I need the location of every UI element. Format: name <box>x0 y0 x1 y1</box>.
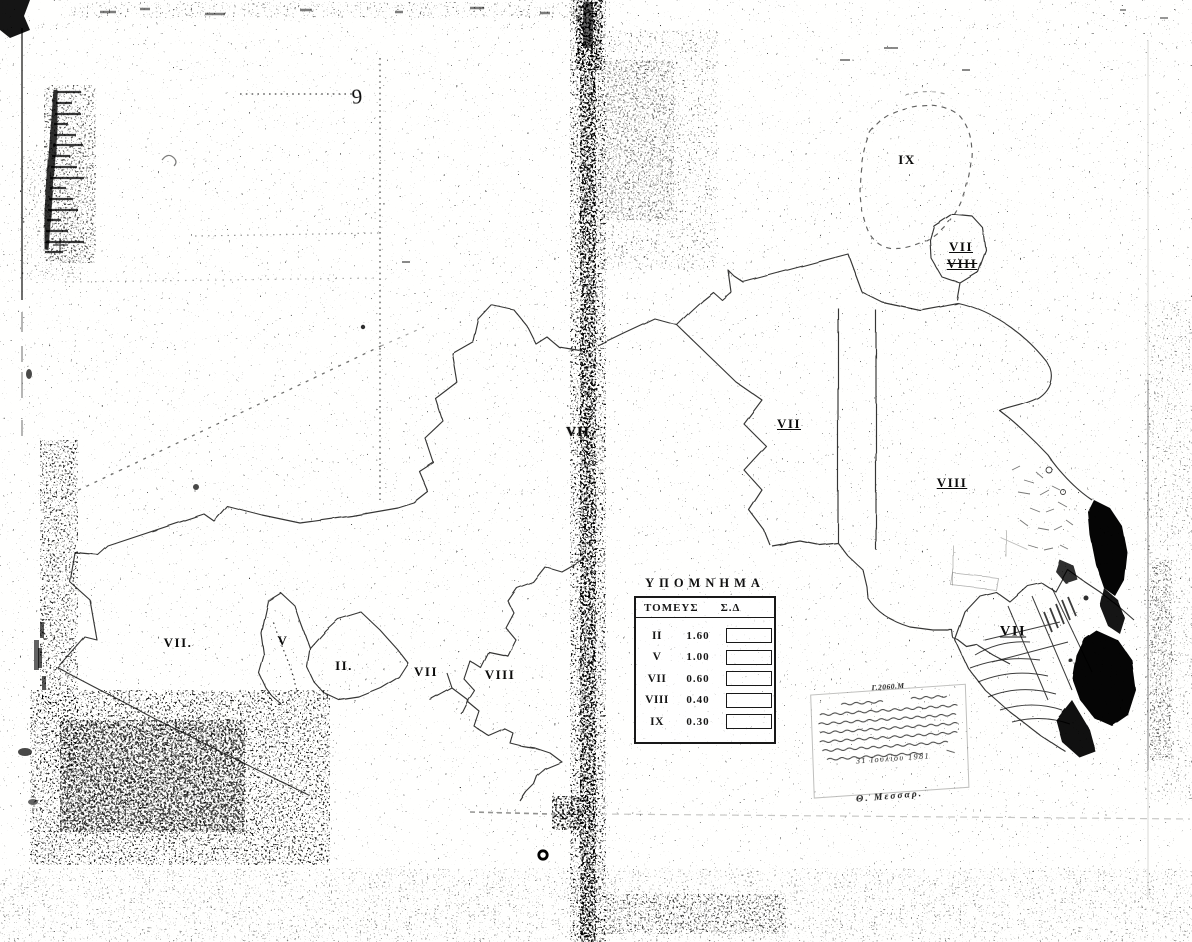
legend-column-sector: ΤΟΜΕΥΣ <box>644 602 699 614</box>
zone-label-viii-small: VIII <box>947 256 978 272</box>
legend-sector: II <box>636 630 678 642</box>
legend-row: VIII 0.40 <box>636 690 774 712</box>
legend: ΥΠΟΜΝΗΜΑ ΤΟΜΕΥΣ Σ.Δ II 1.60 V 1.00 VII <box>634 576 776 744</box>
map-canvas <box>0 0 1192 942</box>
zone-label-vii-east: VII <box>777 416 801 432</box>
zone-label-viii-central: VIII <box>485 667 516 683</box>
legend-header: ΤΟΜΕΥΣ Σ.Δ <box>636 598 774 618</box>
zone-label-vii-west: VII. <box>164 635 193 651</box>
legend-swatch <box>726 693 772 708</box>
legend-title: ΥΠΟΜΝΗΜΑ <box>634 576 776 591</box>
zone-label-vii-small: VII <box>949 239 973 255</box>
legend-value: 0.40 <box>678 694 718 706</box>
legend-box: ΤΟΜΕΥΣ Σ.Δ II 1.60 V 1.00 VII 0.60 <box>634 596 776 744</box>
legend-swatch <box>726 671 772 686</box>
legend-value: 1.00 <box>678 651 718 663</box>
legend-value: 1.60 <box>678 630 718 642</box>
scan-noise-texture <box>0 0 1192 942</box>
legend-swatch <box>726 714 772 729</box>
zone-label-ix: IX <box>898 152 915 168</box>
zone-label-v: V <box>278 633 289 649</box>
legend-swatch <box>726 650 772 665</box>
legend-sector: IX <box>636 716 678 728</box>
legend-row: V 1.00 <box>636 647 774 669</box>
zone-label-vii-southeast: VII <box>1000 624 1026 641</box>
zone-label-vii-fold: VII <box>566 425 590 441</box>
legend-value: 0.60 <box>678 673 718 685</box>
legend-swatch <box>726 628 772 643</box>
legend-value: 0.30 <box>678 716 718 728</box>
zone-label-ii: II. <box>335 658 353 674</box>
legend-row: II 1.60 <box>636 625 774 647</box>
legend-sector: VIII <box>636 694 678 706</box>
zone-label-viii-east: VIII <box>937 475 968 491</box>
sheet-number: 9 <box>351 84 363 110</box>
scanned-map-page: 9 VII. V II. VII VIII VII VII VIII IX VI… <box>0 0 1192 942</box>
legend-sector: VII <box>636 673 678 685</box>
legend-column-coefficient: Σ.Δ <box>721 602 741 614</box>
zone-label-vii-central: VII <box>414 664 438 680</box>
legend-row: VII 0.60 <box>636 668 774 690</box>
legend-row: IX 0.30 <box>636 711 774 733</box>
legend-rows: II 1.60 V 1.00 VII 0.60 VIII 0.40 <box>636 618 774 733</box>
legend-sector: V <box>636 651 678 663</box>
